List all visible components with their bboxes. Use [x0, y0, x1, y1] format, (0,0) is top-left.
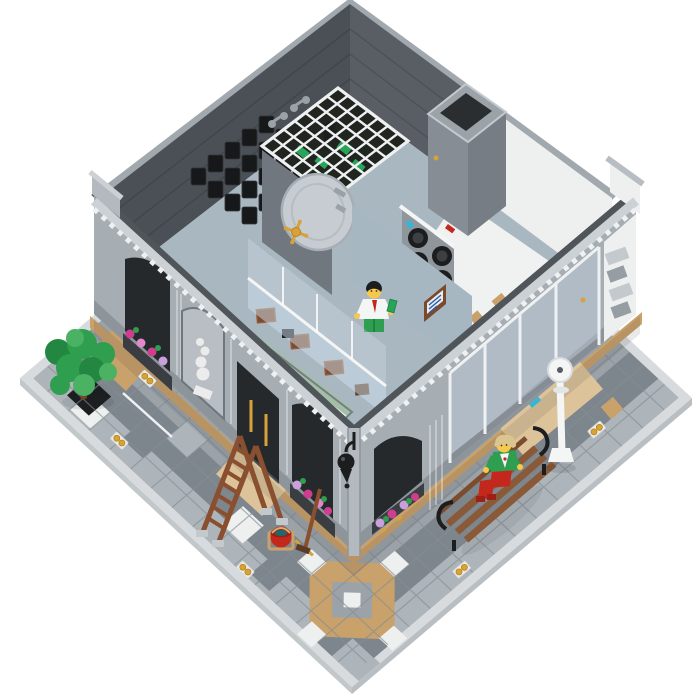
product-photo	[0, 0, 700, 700]
laundry-chute	[428, 84, 506, 236]
bucket-water	[275, 530, 287, 536]
quoin-end	[604, 158, 643, 342]
statue	[197, 368, 210, 381]
shop-door-handle	[581, 298, 586, 303]
lamppost-base	[548, 448, 574, 462]
lamp-globe	[338, 454, 355, 471]
lego-bank-illustration	[0, 0, 700, 700]
chute-keyhole	[434, 156, 439, 161]
